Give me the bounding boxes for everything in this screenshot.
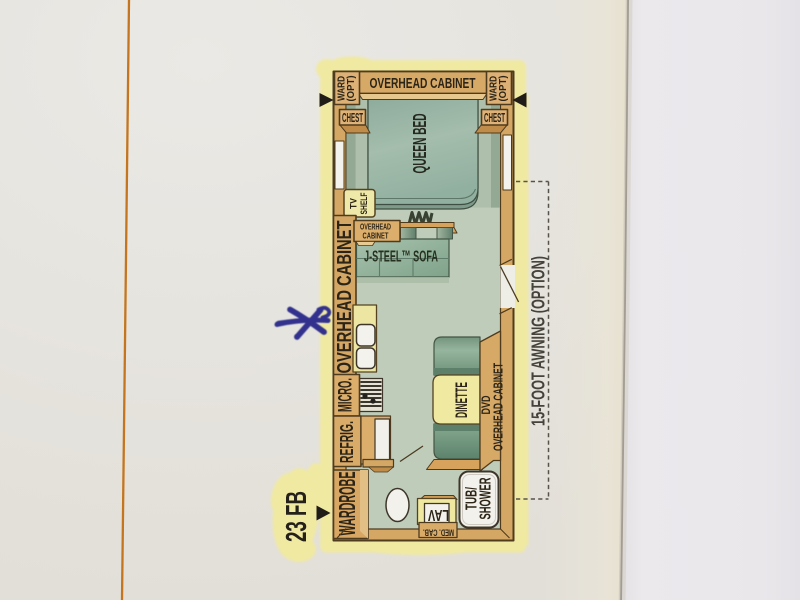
svg-text:(OPT): (OPT) — [346, 76, 357, 102]
svg-text:CABINET: CABINET — [363, 231, 390, 241]
svg-text:LAV: LAV — [428, 506, 449, 523]
svg-text:MED. CAB.: MED. CAB. — [423, 528, 454, 538]
svg-text:23 FB: 23 FB — [281, 491, 313, 542]
svg-text:QUEEN BED: QUEEN BED — [410, 113, 430, 173]
svg-text:WARDROBE: WARDROBE — [334, 472, 360, 536]
svg-text:OVERHEAD CABINET: OVERHEAD CABINET — [492, 363, 506, 451]
svg-text:CHEST: CHEST — [484, 110, 505, 125]
svg-text:OVERHEAD CABINET: OVERHEAD CABINET — [370, 76, 476, 92]
svg-text:TV: TV — [349, 197, 360, 209]
svg-text:15-FOOT AWNING (OPTION): 15-FOOT AWNING (OPTION) — [529, 256, 549, 426]
svg-text:MICRO.: MICRO. — [336, 378, 357, 412]
svg-text:SHOWER: SHOWER — [478, 477, 495, 519]
svg-text:J-STEEL™ SOFA: J-STEEL™ SOFA — [364, 249, 438, 266]
svg-text:(OPT): (OPT) — [498, 76, 509, 102]
svg-text:REFRIG.: REFRIG. — [337, 421, 357, 463]
svg-text:SHELF: SHELF — [359, 192, 370, 214]
svg-text:CHEST: CHEST — [342, 110, 363, 125]
svg-text:DINETTE: DINETTE — [452, 382, 471, 418]
